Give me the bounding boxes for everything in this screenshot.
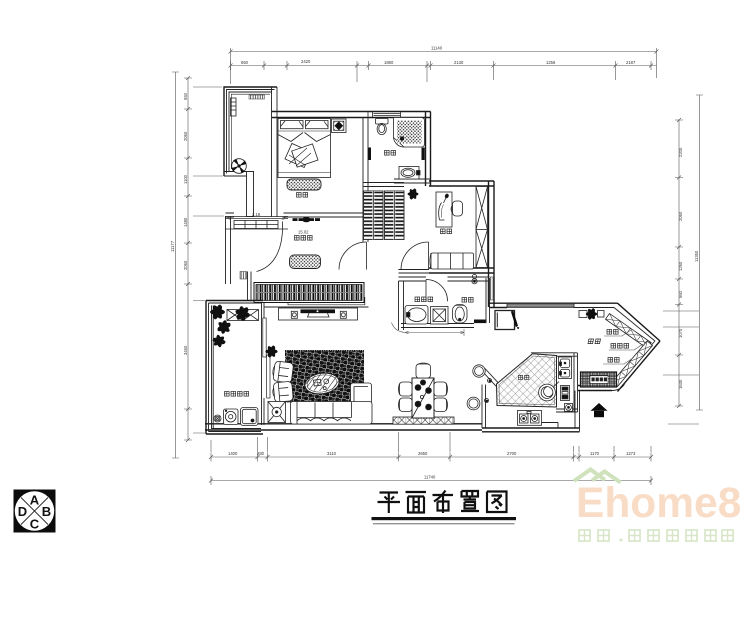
svg-text:2.18: 2.18 bbox=[252, 212, 261, 217]
svg-text:B: B bbox=[42, 504, 51, 519]
svg-text:2187: 2187 bbox=[626, 60, 636, 65]
svg-text:2060: 2060 bbox=[183, 131, 188, 141]
svg-text:280: 280 bbox=[257, 451, 265, 456]
svg-text:2650: 2650 bbox=[418, 451, 428, 456]
svg-text:1273: 1273 bbox=[626, 451, 636, 456]
svg-text:1860: 1860 bbox=[384, 60, 394, 65]
svg-text:1260: 1260 bbox=[678, 261, 683, 271]
svg-text:550: 550 bbox=[183, 92, 188, 100]
svg-text:D: D bbox=[18, 504, 27, 519]
svg-text:3460: 3460 bbox=[183, 345, 188, 355]
svg-text:C: C bbox=[30, 517, 40, 532]
svg-text:A: A bbox=[30, 493, 40, 508]
svg-text:11177: 11177 bbox=[170, 240, 175, 252]
svg-text:1400: 1400 bbox=[228, 451, 238, 456]
svg-text:2060: 2060 bbox=[678, 211, 683, 221]
svg-text:Ehome8: Ehome8 bbox=[576, 480, 741, 527]
svg-text:1070: 1070 bbox=[678, 328, 683, 338]
svg-text:1100: 1100 bbox=[183, 174, 188, 184]
svg-text:650: 650 bbox=[241, 60, 249, 65]
svg-text:1170: 1170 bbox=[590, 451, 600, 456]
svg-text:1630: 1630 bbox=[678, 379, 683, 389]
svg-text:11740: 11740 bbox=[424, 475, 436, 480]
svg-text:2130: 2130 bbox=[454, 60, 464, 65]
svg-text:2060: 2060 bbox=[183, 260, 188, 270]
svg-text:3110: 3110 bbox=[327, 451, 337, 456]
svg-text:11140: 11140 bbox=[431, 46, 443, 51]
svg-text:1480: 1480 bbox=[183, 217, 188, 227]
svg-text:11350: 11350 bbox=[694, 250, 699, 262]
svg-text:1256: 1256 bbox=[546, 60, 556, 65]
svg-text:2700: 2700 bbox=[507, 451, 517, 456]
svg-text:2200: 2200 bbox=[678, 147, 683, 157]
svg-text:2420: 2420 bbox=[301, 59, 311, 64]
svg-text:560: 560 bbox=[678, 290, 683, 298]
svg-text:15.02: 15.02 bbox=[298, 230, 309, 235]
